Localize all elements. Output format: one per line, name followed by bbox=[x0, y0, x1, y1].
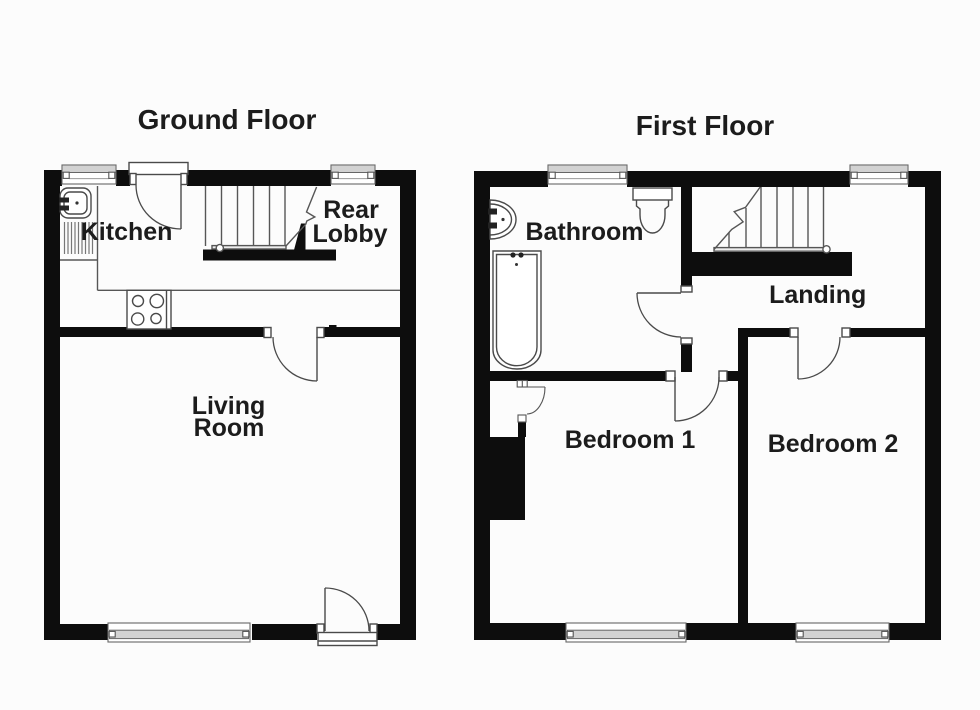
svg-text:First Floor: First Floor bbox=[636, 110, 775, 141]
svg-text:Bedroom 1: Bedroom 1 bbox=[565, 426, 696, 454]
svg-text:Bedroom 2: Bedroom 2 bbox=[768, 430, 899, 458]
svg-text:Bathroom: Bathroom bbox=[525, 218, 643, 246]
svg-text:Room: Room bbox=[194, 414, 265, 442]
svg-text:Kitchen: Kitchen bbox=[81, 218, 173, 246]
svg-text:Ground Floor: Ground Floor bbox=[138, 104, 317, 135]
svg-text:Lobby: Lobby bbox=[313, 220, 388, 248]
svg-text:Landing: Landing bbox=[769, 281, 866, 309]
